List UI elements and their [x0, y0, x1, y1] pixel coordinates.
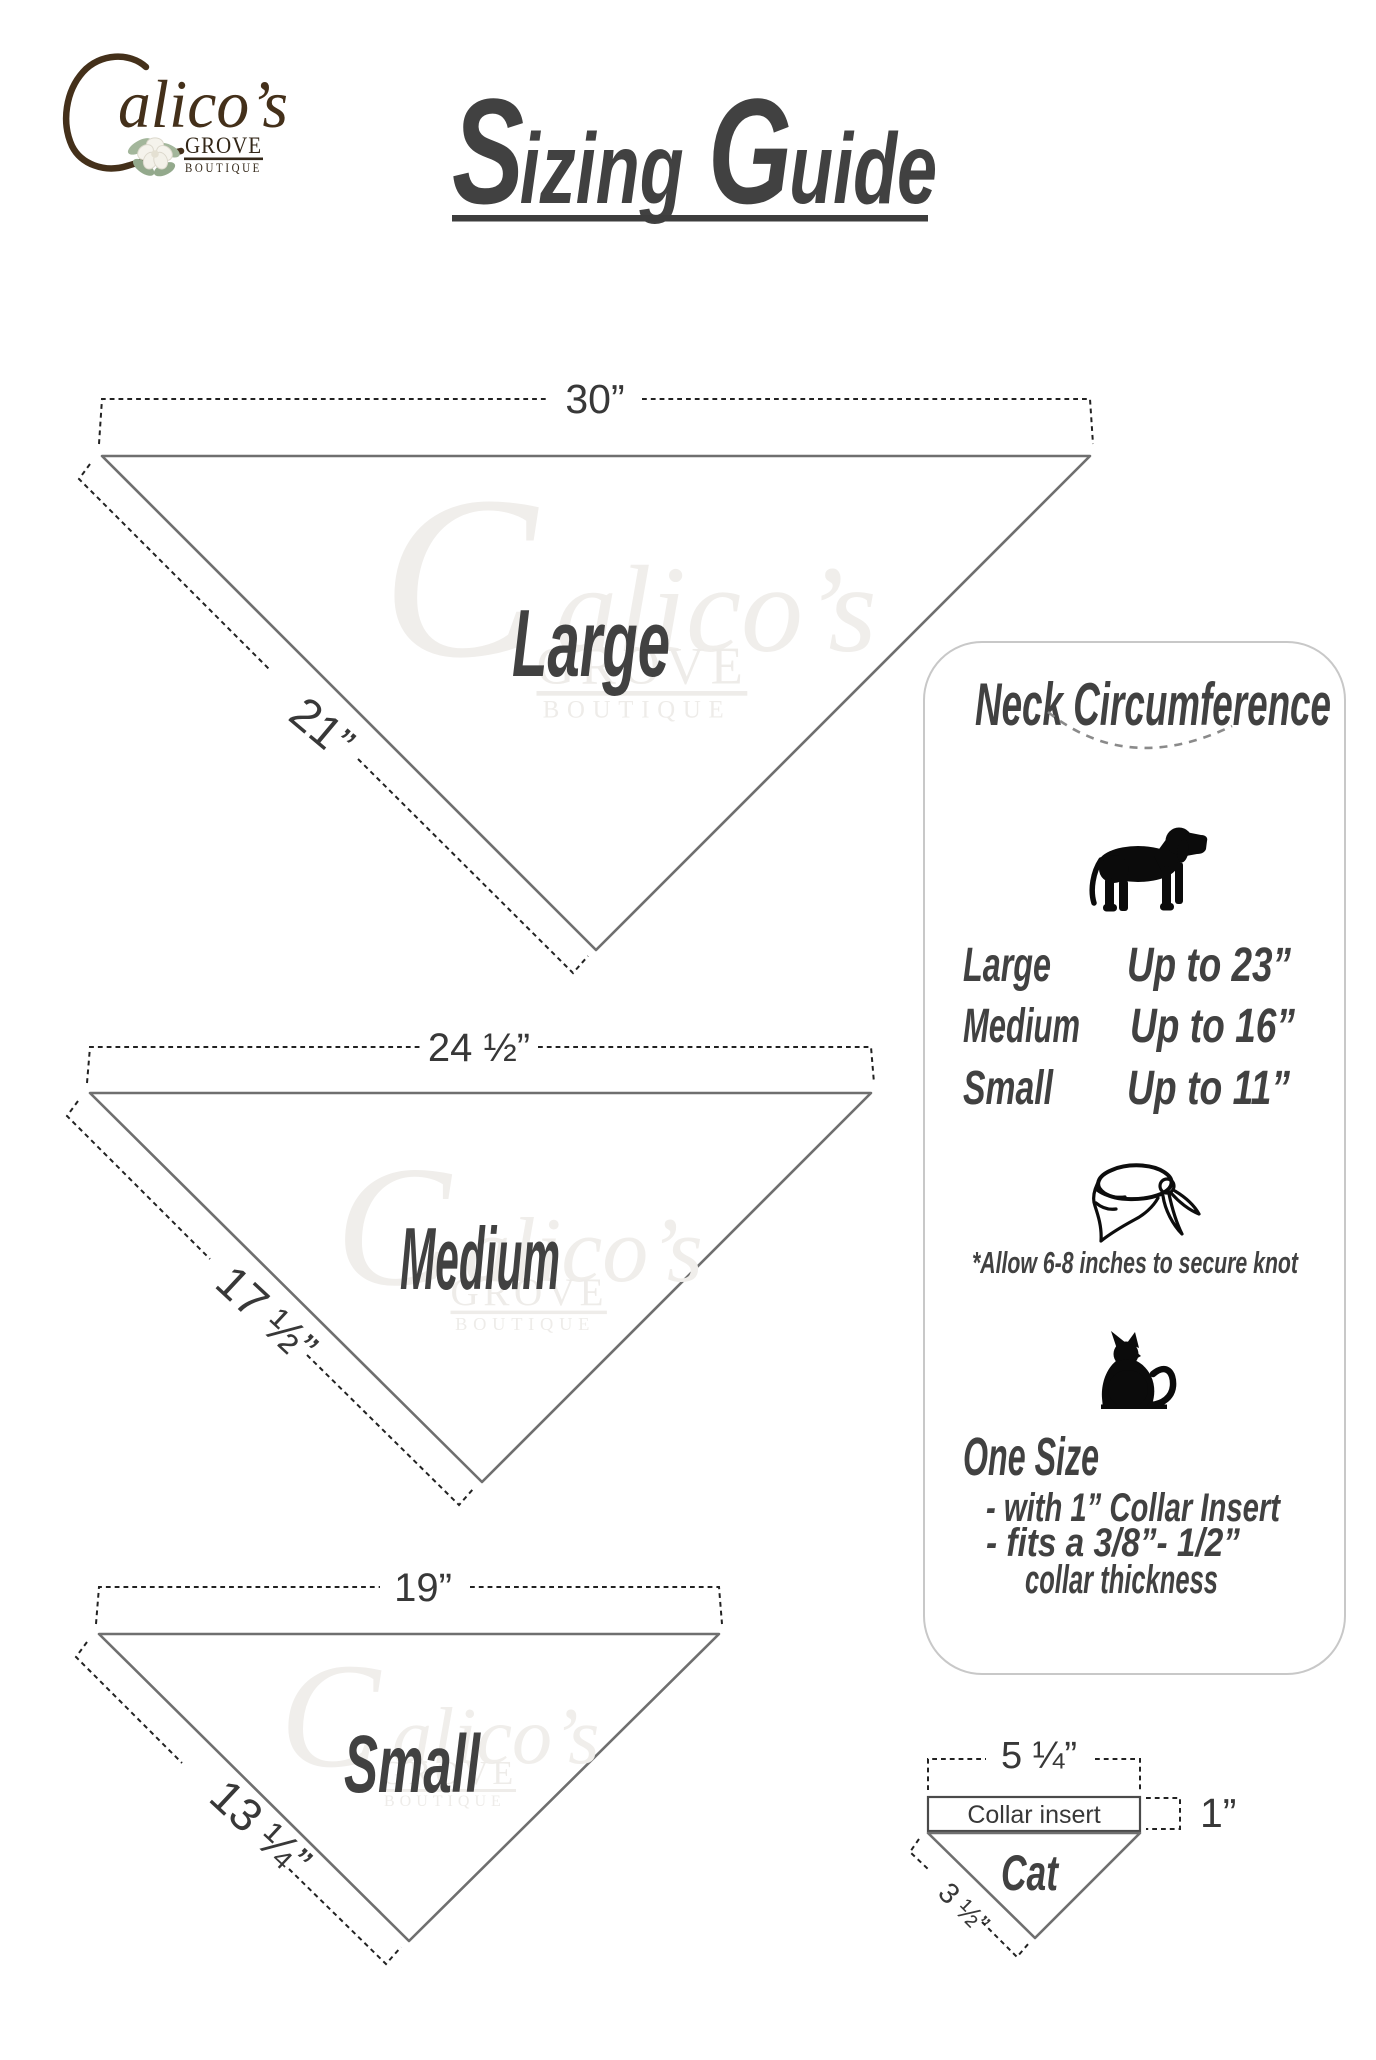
svg-text:alico’s: alico’s — [118, 66, 288, 142]
svg-text:24 ½”: 24 ½” — [428, 1026, 530, 1070]
svg-text:Up to 16”: Up to 16” — [1130, 1000, 1295, 1053]
svg-text:Large: Large — [512, 590, 670, 697]
svg-text:Up to 23”: Up to 23” — [1127, 939, 1291, 992]
svg-text:Cat: Cat — [1001, 1845, 1060, 1901]
svg-text:Medium: Medium — [963, 1000, 1080, 1053]
svg-text:Large: Large — [963, 939, 1051, 992]
svg-text:*Allow 6-8 inches to secure kn: *Allow 6-8 inches to secure knot — [972, 1245, 1299, 1280]
svg-text:Small: Small — [344, 1719, 481, 1810]
svg-text:5 ¼”: 5 ¼” — [1001, 1735, 1077, 1777]
svg-text:30”: 30” — [565, 376, 624, 422]
svg-text:Collar insert: Collar insert — [967, 1801, 1100, 1829]
svg-text:19”: 19” — [394, 1566, 452, 1610]
svg-text:collar thickness: collar thickness — [1025, 1558, 1218, 1602]
svg-text:Small: Small — [963, 1062, 1054, 1115]
svg-text:1”: 1” — [1200, 1790, 1236, 1836]
svg-text:GROVE: GROVE — [185, 133, 262, 158]
svg-text:BOUTIQUE: BOUTIQUE — [185, 161, 262, 175]
svg-text:Up to 11”: Up to 11” — [1127, 1062, 1290, 1115]
svg-text:Neck Circumference: Neck Circumference — [975, 671, 1331, 738]
svg-text:Medium: Medium — [400, 1209, 560, 1308]
svg-text:One Size: One Size — [963, 1427, 1099, 1487]
